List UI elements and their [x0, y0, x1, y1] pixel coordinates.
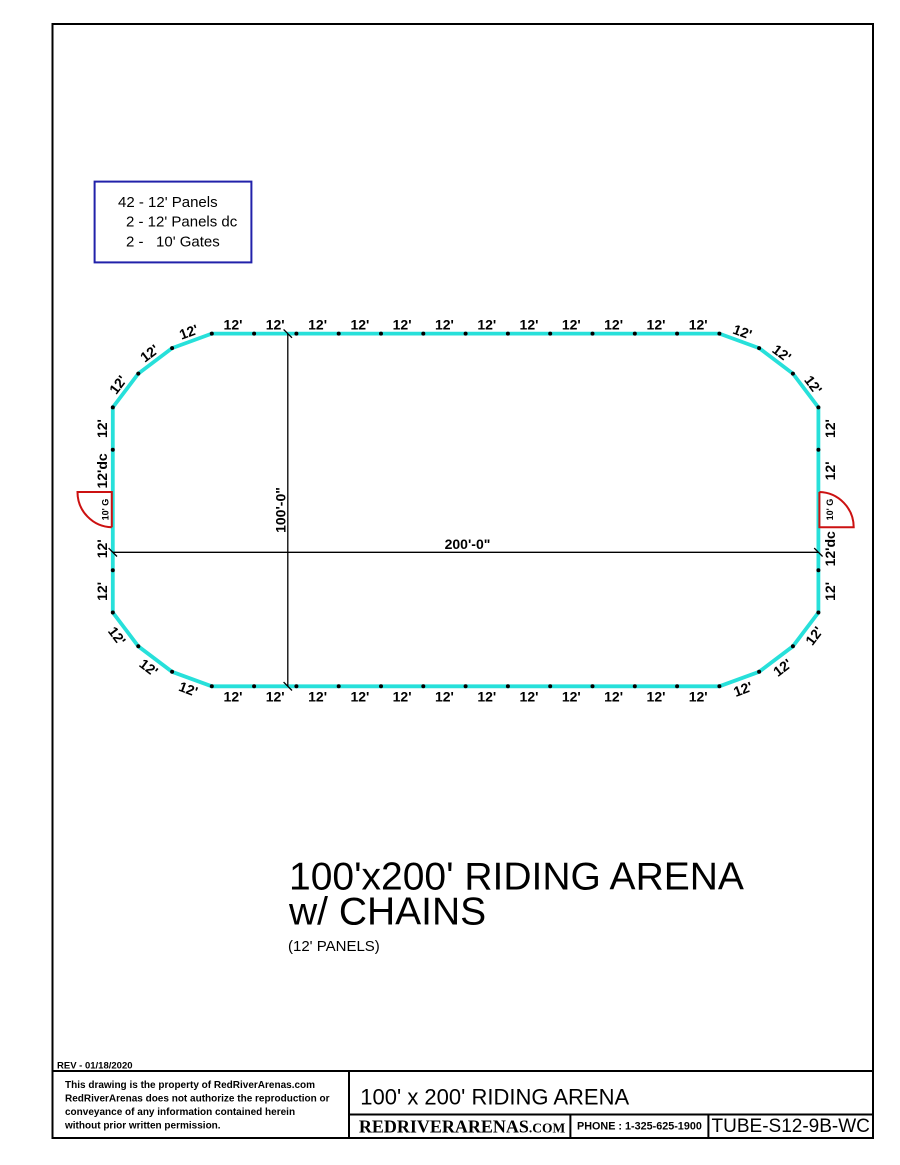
- svg-text:12': 12': [689, 689, 708, 705]
- svg-text:100'-0": 100'-0": [273, 487, 289, 533]
- svg-text:2 - 10' Gates: 2 - 10' Gates: [126, 234, 220, 251]
- svg-text:12': 12': [224, 317, 243, 333]
- svg-text:12': 12': [562, 689, 581, 705]
- svg-text:12': 12': [435, 689, 454, 705]
- svg-text:100' x 200' RIDING ARENA: 100' x 200' RIDING ARENA: [360, 1085, 629, 1110]
- svg-text:12': 12': [308, 317, 327, 333]
- svg-text:12': 12': [308, 689, 327, 705]
- svg-text:12': 12': [822, 461, 838, 480]
- svg-text:200'-0": 200'-0": [445, 536, 491, 552]
- svg-text:RedRiverArenas does not author: RedRiverArenas does not authorize the re…: [65, 1094, 330, 1105]
- svg-text:without prior written permissi: without prior written permission.: [64, 1121, 221, 1132]
- svg-text:TUBE-S12-9B-WC: TUBE-S12-9B-WC: [712, 1116, 870, 1137]
- svg-text:(12' PANELS): (12' PANELS): [288, 938, 380, 955]
- svg-text:12': 12': [647, 317, 666, 333]
- svg-text:12': 12': [94, 539, 110, 558]
- svg-text:PHONE : 1-325-625-1900: PHONE : 1-325-625-1900: [577, 1121, 702, 1133]
- svg-text:12': 12': [520, 317, 539, 333]
- svg-text:10' G: 10' G: [101, 499, 111, 521]
- svg-text:12'dc: 12'dc: [822, 531, 838, 566]
- svg-text:12'dc: 12'dc: [94, 453, 110, 488]
- svg-text:42 - 12' Panels: 42 - 12' Panels: [118, 194, 218, 211]
- svg-text:10' G: 10' G: [825, 499, 835, 521]
- svg-text:12': 12': [94, 419, 110, 438]
- svg-text:12': 12': [266, 317, 285, 333]
- svg-text:w/ CHAINS: w/ CHAINS: [288, 891, 486, 934]
- svg-text:12': 12': [604, 689, 623, 705]
- svg-text:12': 12': [266, 689, 285, 705]
- svg-text:12': 12': [604, 317, 623, 333]
- svg-text:12': 12': [393, 689, 412, 705]
- svg-text:12': 12': [520, 689, 539, 705]
- svg-text:12': 12': [689, 317, 708, 333]
- svg-text:12': 12': [822, 582, 838, 601]
- svg-text:12': 12': [647, 689, 666, 705]
- svg-text:12': 12': [822, 419, 838, 438]
- svg-text:12': 12': [562, 317, 581, 333]
- svg-text:2 - 12' Panels dc: 2 - 12' Panels dc: [126, 214, 238, 231]
- svg-text:12': 12': [477, 689, 496, 705]
- svg-text:12': 12': [435, 317, 454, 333]
- svg-text:This drawing is the property o: This drawing is the property of RedRiver…: [65, 1080, 315, 1091]
- svg-text:conveyance of any information: conveyance of any information contained …: [65, 1107, 295, 1118]
- svg-text:12': 12': [477, 317, 496, 333]
- svg-text:12': 12': [350, 689, 369, 705]
- svg-text:12': 12': [224, 689, 243, 705]
- svg-text:12': 12': [350, 317, 369, 333]
- svg-text:12': 12': [94, 582, 110, 601]
- svg-text:REV - 01/18/2020: REV - 01/18/2020: [57, 1061, 133, 1072]
- svg-text:12': 12': [393, 317, 412, 333]
